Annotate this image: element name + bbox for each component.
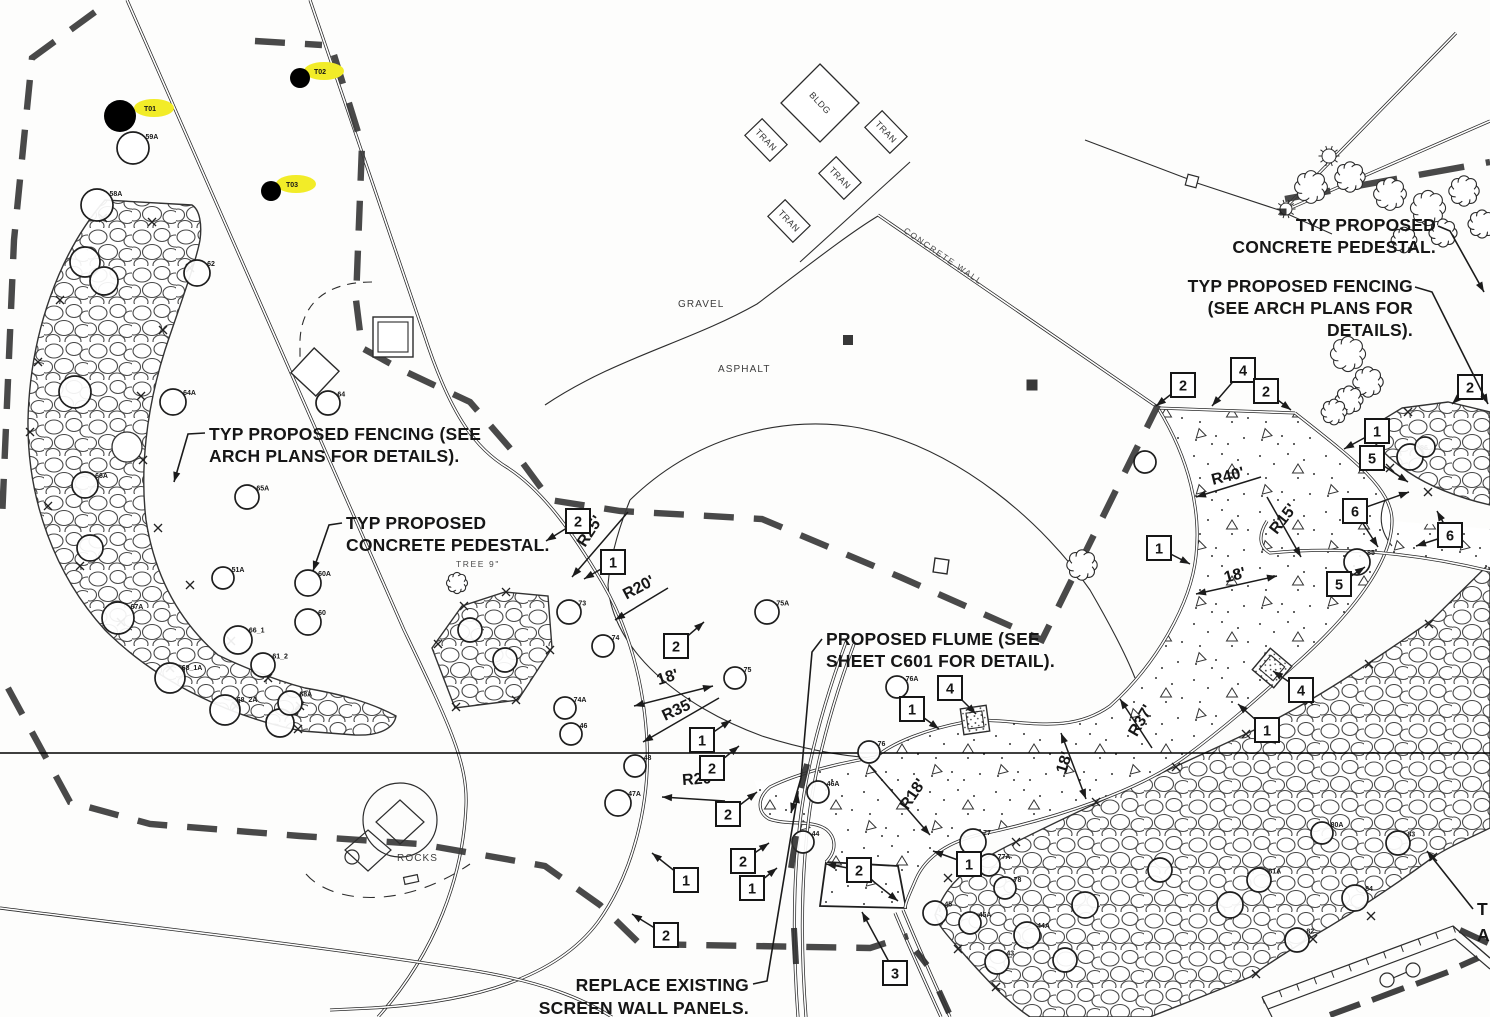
- rocks-chip: [404, 875, 419, 885]
- keynote-number: 5: [1335, 578, 1343, 594]
- tree-number-label: 67A: [130, 604, 143, 611]
- keynote-number: 6: [1351, 505, 1359, 521]
- rock-bed-left-crescent: [28, 200, 396, 735]
- tree-number-label: 68_1A: [182, 665, 203, 672]
- path-northwest: [127, 0, 466, 1017]
- tree-symbol: 62: [184, 260, 215, 286]
- screen-wall-panel-mark: [794, 928, 796, 964]
- planter-tick: [1366, 958, 1368, 965]
- tree-symbol: [1072, 892, 1098, 918]
- removed-tree-tag: T03: [286, 182, 298, 189]
- tree-9-label: TREE 9": [456, 559, 500, 569]
- tree-number-label: 46: [580, 723, 588, 730]
- fence-top-short: [255, 41, 322, 45]
- tree-symbol: 66_1: [224, 626, 265, 654]
- tree-number-label: 76: [878, 741, 886, 748]
- tree-number-label: 59A: [145, 134, 158, 141]
- leader-arrowhead: [1281, 401, 1291, 410]
- dimension-callout: 18': [634, 666, 713, 707]
- tree-number-label: 84: [1365, 886, 1373, 893]
- tree-number-label: 44: [812, 831, 820, 838]
- leader-arrowhead: [1398, 473, 1408, 482]
- annotation-text: PROPOSED FLUME (SEESHEET C601 FOR DETAIL…: [826, 629, 1055, 671]
- leader-arrowhead: [759, 843, 769, 852]
- keynote-number: 2: [1179, 379, 1187, 395]
- tree-symbol: 61_2: [251, 653, 288, 677]
- keynote: 1: [900, 697, 939, 729]
- leader-arrowhead: [173, 471, 180, 482]
- shrub-cloud-symbol: [1330, 336, 1365, 371]
- keynote-number: 4: [946, 682, 954, 698]
- leader-arrowhead: [747, 792, 757, 801]
- tree-symbol: 60A: [295, 570, 331, 596]
- concrete-pedestal-symbol: [933, 558, 949, 574]
- tree-symbol: [493, 648, 517, 672]
- tree-number-label: 46A: [827, 781, 840, 788]
- annotation-text: TYP PROPOSED FENCING(SEE ARCH PLANS FORD…: [1188, 276, 1414, 340]
- keynote-number: 2: [1262, 385, 1270, 401]
- tree-symbol: [1053, 948, 1077, 972]
- keynote: 2: [664, 622, 704, 658]
- tree-number-label: 58A: [109, 191, 122, 198]
- keynote: 2: [1452, 375, 1482, 404]
- tree-symbol: 76A: [886, 676, 918, 698]
- annotation-text: TA: [1477, 899, 1490, 945]
- keynote: 1: [690, 720, 731, 752]
- keynote: 1: [1147, 536, 1190, 564]
- tree-number-label: 62: [207, 261, 215, 268]
- rocks-label: ROCKS: [397, 853, 438, 864]
- keynote-number: 1: [1155, 542, 1163, 558]
- tree-number-label: 66A: [95, 473, 108, 480]
- tree-number-label: 77A: [998, 854, 1011, 861]
- keynote-number: 1: [609, 556, 617, 572]
- highlighted-removed-tree: T01: [104, 99, 174, 132]
- keynote-number: 1: [682, 874, 690, 890]
- transformer-tran: TRAN: [819, 157, 861, 200]
- leader-arrowhead: [634, 700, 645, 707]
- tree-symbol: 64: [316, 391, 345, 415]
- tree-number-label: 68_2A: [237, 697, 258, 704]
- tree-number-label: 43: [1006, 950, 1014, 957]
- tree-symbol: 47A: [605, 790, 641, 816]
- highlighted-removed-tree: T02: [290, 62, 344, 88]
- replace-screen-wall-note: REPLACE EXISTINGSCREEN WALL PANELS.: [539, 793, 800, 1017]
- rock-bed-center-patch: [432, 592, 552, 708]
- tree-symbol: [77, 535, 103, 561]
- rock-edge-x-marker: [944, 874, 952, 882]
- dimension-text: R35': [659, 695, 696, 724]
- tree-symbol: 74A: [554, 697, 586, 719]
- keynote-number: 1: [698, 734, 706, 750]
- keynote-number: 2: [574, 515, 582, 531]
- dark-hatch-square: [1027, 380, 1038, 391]
- tree-symbol: 46: [560, 723, 587, 745]
- tree-symbol: 73: [557, 600, 586, 624]
- leader-arrowhead: [1476, 282, 1484, 292]
- rock-edge-x-marker: [1424, 488, 1432, 496]
- leader-arrowhead: [702, 685, 713, 692]
- highlighted-removed-tree: T03: [261, 175, 316, 201]
- concrete-pedestal-symbol: [373, 317, 413, 357]
- screen-wall-panel-mark: [1330, 1004, 1360, 1015]
- leader-arrowhead: [929, 720, 939, 729]
- rocks-circle: [363, 783, 437, 857]
- tree-number-label: 64: [337, 391, 345, 398]
- leader-arrowhead: [862, 912, 870, 923]
- tree-number-label: 73: [578, 600, 586, 607]
- tree-number-label: 78: [1014, 877, 1022, 884]
- tree-number-label: 47A: [628, 791, 641, 798]
- gravel-boundary: [545, 216, 878, 405]
- tree-number-label: 74A: [574, 697, 587, 704]
- tree-number-label: 65A: [256, 485, 269, 492]
- tree-number-label: 76A: [906, 676, 919, 683]
- keynote: 4: [938, 676, 976, 714]
- tree-number-label: 82: [1306, 928, 1314, 935]
- planter-tick: [1401, 945, 1403, 952]
- planter-tick: [1384, 952, 1386, 959]
- keynote-number: 1: [1373, 425, 1381, 441]
- planter-tick: [1436, 932, 1438, 939]
- keynote-number: 2: [662, 929, 670, 945]
- keynote-number: 3: [891, 967, 899, 983]
- keynote-number: 2: [855, 864, 863, 880]
- tree-number-label: 61_2: [272, 653, 288, 660]
- tree-symbol: 74: [592, 635, 619, 657]
- transformer-tran: TRAN: [768, 200, 810, 243]
- shrub-cloud-symbol: [1468, 210, 1490, 238]
- tree-number-label: 74: [612, 635, 620, 642]
- tree-number-label: 81A: [1268, 868, 1281, 875]
- tree-symbol: [1217, 892, 1243, 918]
- tree-number-label: 60A: [318, 571, 331, 578]
- path-bottom-left: [0, 908, 612, 1017]
- tree-symbol: 82: [1285, 928, 1314, 952]
- tree-symbol: 60: [295, 609, 326, 635]
- planter-tick: [1297, 984, 1299, 991]
- shrub-cloud-symbol: [1295, 171, 1328, 204]
- keynote-number: 1: [908, 703, 916, 719]
- keynote-number: 1: [748, 882, 756, 898]
- tree-number-label: 51A: [232, 567, 245, 574]
- tree-number-label: 68A: [299, 691, 312, 698]
- keynote: 2: [1156, 373, 1195, 406]
- keynote-number: 1: [1263, 724, 1271, 740]
- annotation-text: TYP PROPOSED FENCING (SEEARCH PLANS FOR …: [209, 424, 481, 466]
- tree-number-label: 45A: [979, 912, 992, 919]
- keynote-number: 4: [1239, 364, 1247, 380]
- leader-arrowhead: [1179, 556, 1190, 564]
- keynote-number: 2: [708, 762, 716, 778]
- leader-arrowhead: [313, 560, 320, 571]
- leader-arrowhead: [1398, 492, 1409, 499]
- screen-wall-panel-mark: [1416, 972, 1448, 984]
- leader-arrowhead: [584, 571, 594, 579]
- shrub-cloud-symbol: [1335, 162, 1365, 192]
- dimension-text: 18': [655, 666, 681, 689]
- tree-number-label: 83: [1407, 831, 1415, 838]
- typ-proposed-pedestal-left: TYP PROPOSEDCONCRETE PEDESTAL.: [313, 513, 550, 571]
- screen-wall-panel-mark: [1372, 988, 1404, 1000]
- concrete-wall-label: CONCRETE WALL: [902, 225, 985, 286]
- rock-edge-x-marker: [186, 581, 194, 589]
- planter-tick: [1418, 939, 1420, 946]
- keynote-number: 2: [1466, 381, 1474, 397]
- tree-number-label: 64A: [183, 390, 196, 397]
- tree-symbol: 59A: [117, 132, 158, 164]
- transformer-tran: TRAN: [745, 119, 787, 162]
- tree-number-label: 75: [744, 667, 752, 674]
- tree-number-label: 75A: [776, 600, 789, 607]
- dark-hatch-square: [1280, 209, 1287, 216]
- tree-number-label: 45: [944, 901, 952, 908]
- keynote: 1: [652, 853, 698, 892]
- tree-symbol: 84: [1342, 885, 1373, 911]
- tree-number-label: 44A: [1037, 923, 1050, 930]
- annotation-text: TYP PROPOSEDCONCRETE PEDESTAL.: [346, 513, 550, 555]
- tree-symbol: 75A: [755, 600, 789, 624]
- leader-arrowhead: [643, 734, 653, 742]
- leader-arrowhead: [632, 914, 642, 922]
- typ-proposed-fencing-left: TYP PROPOSED FENCING (SEEARCH PLANS FOR …: [173, 424, 481, 482]
- keynote-number: 6: [1446, 529, 1454, 545]
- shrub-cloud-symbol: [1067, 550, 1097, 580]
- leader-arrowhead: [1156, 397, 1166, 406]
- planter-tick: [1331, 971, 1333, 978]
- tree-symbol: [59, 376, 91, 408]
- topright-wire-2: [1197, 183, 1282, 211]
- planter-tick: [1349, 965, 1351, 972]
- tree-symbol: 75: [724, 667, 751, 689]
- gravel-label: GRAVEL: [678, 299, 724, 310]
- planter-tick: [1279, 991, 1281, 998]
- rock-edge-x-marker: [1367, 912, 1375, 920]
- keynote-number: 1: [965, 858, 973, 874]
- topright-wire-1: [1085, 140, 1188, 179]
- tree-symbol: [458, 618, 482, 642]
- path-bottom-left: [0, 908, 612, 1017]
- keynote-number: 5: [1368, 452, 1376, 468]
- concrete-pedestal-symbol: [960, 705, 989, 734]
- transformer-tran: TRAN: [865, 111, 907, 154]
- dimension-text: R20': [620, 573, 657, 604]
- keynote: 2: [632, 914, 678, 947]
- rocks-dashed-arc: [306, 864, 470, 898]
- tree-number-label: 66_1: [249, 627, 265, 634]
- rocks-cluster: [345, 783, 437, 884]
- tree-number-label: 60: [318, 610, 326, 617]
- keynote: 1: [933, 851, 981, 876]
- tree-number-label: 85: [1367, 550, 1375, 557]
- shrub-cloud-symbol: [1321, 399, 1347, 425]
- dimension-callout: R20': [615, 573, 668, 620]
- tree-symbol: [1148, 858, 1172, 882]
- tree-symbol: 51A: [212, 567, 244, 589]
- site-plan-drawing: BLDGTRANTRANTRANTRAN59A58A6264A66A65A60A…: [0, 0, 1490, 1017]
- keynote-number: 2: [739, 855, 747, 871]
- planter-tick: [1314, 978, 1316, 985]
- tree-symbol: 64A: [160, 389, 196, 415]
- shrub-cloud-symbol: [446, 572, 467, 593]
- keynote: 4: [1273, 671, 1313, 702]
- keynote-number: 4: [1297, 684, 1305, 700]
- keynote: 2: [731, 843, 769, 873]
- tree-number-label: 77: [983, 830, 991, 837]
- keynote-number: 2: [672, 640, 680, 656]
- rock-edge-x-marker: [154, 524, 162, 532]
- tree-symbol: [1134, 451, 1156, 473]
- tree-number-label: 48: [644, 755, 652, 762]
- site-plan-page: BLDGTRANTRANTRANTRAN59A58A6264A66A65A60A…: [0, 0, 1490, 1017]
- keynote: 2: [716, 792, 757, 826]
- dumbbell-symbol: [1380, 963, 1420, 987]
- shrub-cloud-symbol: [1374, 178, 1407, 211]
- keynote: 4: [1212, 358, 1255, 406]
- rock-bay-notch: [112, 432, 142, 462]
- utility-box-symbol: [1185, 174, 1198, 187]
- tree-symbol: [90, 267, 118, 295]
- rocks-boulder-1: [376, 800, 424, 844]
- leader-arrowhead: [662, 794, 672, 801]
- building-bldg: BLDG: [781, 64, 859, 142]
- tree-symbol: 65A: [235, 485, 269, 509]
- spoked-plant-symbol: [1319, 146, 1340, 166]
- screen-wall-panel-mark: [1460, 958, 1478, 966]
- keynote: 2: [1254, 379, 1291, 410]
- leader-arrowhead: [1437, 511, 1445, 522]
- path-northwest: [127, 0, 466, 1017]
- tree-symbol: [1415, 437, 1435, 457]
- asphalt-label: ASPHALT: [718, 364, 771, 375]
- screen-wall-panel-mark: [939, 991, 949, 1013]
- removed-tree-tag: T02: [314, 69, 326, 76]
- tree-number-label: 80A: [1331, 822, 1344, 829]
- keynote-number: 2: [724, 808, 732, 824]
- dark-hatch-square: [843, 335, 853, 345]
- leader-arrowhead: [1344, 441, 1355, 449]
- removed-tree-tag: T01: [144, 106, 156, 113]
- shrub-cloud-symbol: [1449, 176, 1479, 206]
